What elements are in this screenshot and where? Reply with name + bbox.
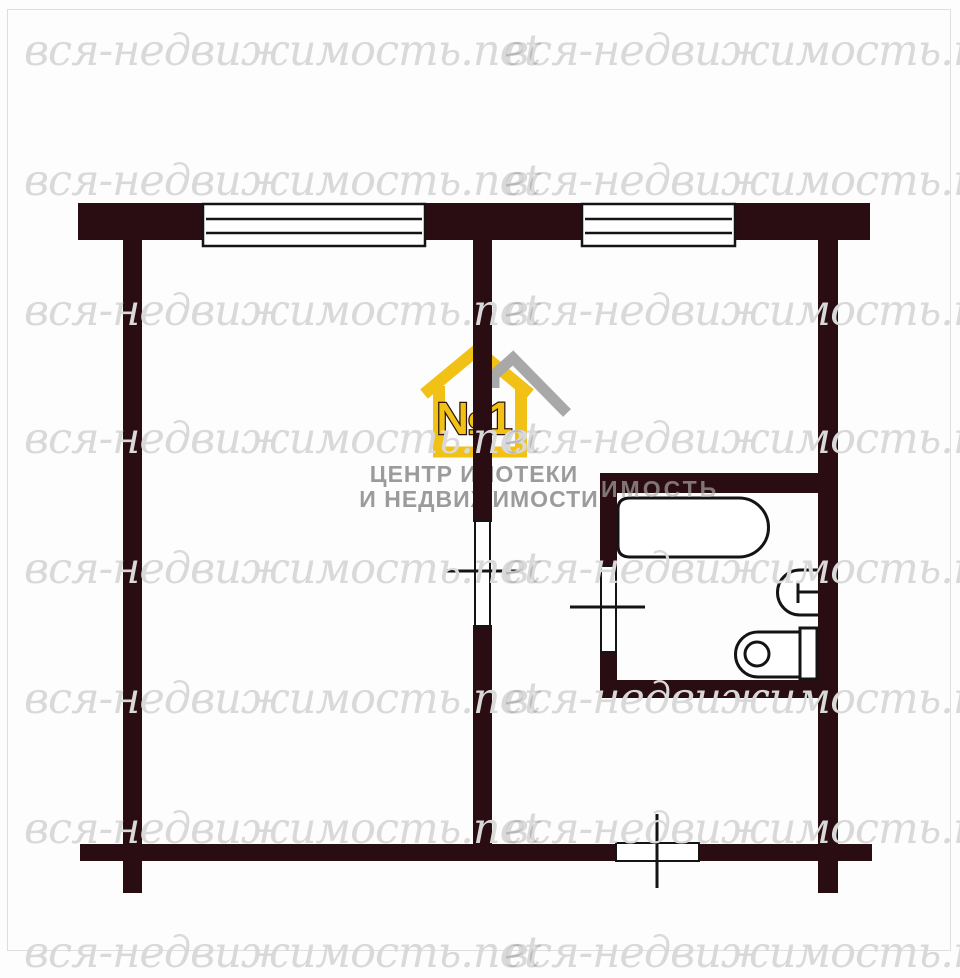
floor-plan — [0, 0, 960, 960]
window-top-right — [582, 204, 735, 246]
right-wall — [818, 230, 838, 893]
sink — [778, 570, 818, 615]
divider-wall-upper — [473, 240, 492, 522]
bathroom-top-wall — [600, 473, 818, 493]
bathroom-door — [601, 566, 616, 652]
bathtub — [618, 498, 769, 557]
window-top-left — [203, 204, 425, 246]
top-wall — [78, 203, 870, 240]
divider-wall-lower — [473, 625, 492, 845]
room-door — [475, 521, 490, 626]
left-wall — [123, 240, 142, 893]
toilet — [736, 628, 818, 679]
bathroom-bottom-wall — [600, 680, 818, 698]
bathroom-left-wall-upper — [600, 473, 617, 566]
bottom-wall — [80, 844, 872, 861]
bathroom-left-wall-lower — [600, 652, 617, 698]
